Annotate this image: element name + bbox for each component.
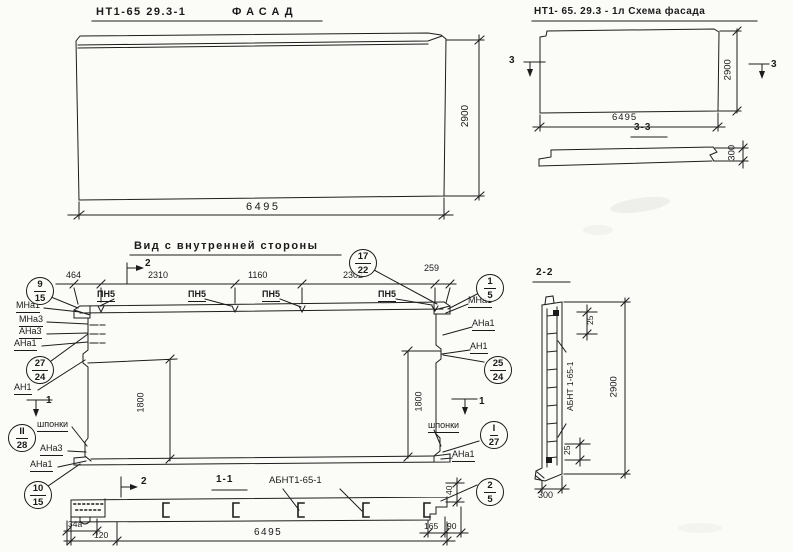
callout-bottom: 24 xyxy=(493,371,504,383)
callout-top: 27 xyxy=(32,358,49,371)
callout-top: 2 xyxy=(484,480,495,493)
dim-90: 90 xyxy=(447,522,456,531)
dim-34a: 34а xyxy=(68,520,82,529)
scheme-section-mark-left: 3 xyxy=(509,56,515,66)
callout-27-24: 27 24 xyxy=(26,356,54,384)
plate-label-pn5-2: ПН5 xyxy=(188,290,206,302)
scheme-section-mark-right: 3 xyxy=(771,60,777,70)
anchor-label-ana1-right: АНа1 xyxy=(472,319,495,331)
inner-section-mark-2: 2 xyxy=(145,259,151,269)
section-2-2-label: 2-2 xyxy=(536,268,553,278)
anchor-label-ana1-left: АНа1 xyxy=(14,339,37,351)
inner-dim-right-1800: 1800 xyxy=(415,384,424,420)
callout-bottom: 28 xyxy=(17,439,28,451)
callout-17-22: 17 22 xyxy=(349,249,377,277)
callout-9-15: 9 15 xyxy=(26,277,54,305)
callout-bottom: 22 xyxy=(358,264,369,276)
callout-bottom: 5 xyxy=(487,289,492,301)
inner-dim-1160: 1160 xyxy=(248,271,267,280)
callout-top: II xyxy=(16,426,27,439)
callout-bottom: 15 xyxy=(35,292,46,304)
section-mark-arrowheads xyxy=(33,69,765,490)
dim-25-top: 25 xyxy=(586,310,595,330)
callout-I-27: I 27 xyxy=(480,421,508,449)
callout-top: 1 xyxy=(484,276,495,289)
keys-label-right: шпонки xyxy=(428,421,459,433)
callout-1-5: 1 5 xyxy=(476,274,504,302)
section-1-1-label: 1-1 xyxy=(216,475,233,485)
scheme-title: НТ1- 65. 29.3 - 1л Схема фасада xyxy=(534,7,705,17)
anchor-ref-2-2: АБНТ 1-65-1 xyxy=(566,349,575,423)
inner-section-mark-1-right: 1 xyxy=(479,397,485,407)
anchor-label-an1-left: АН1 xyxy=(14,383,32,395)
drawing-linework xyxy=(0,0,793,552)
anchor-label-ana1-right-2: АНа1 xyxy=(452,450,475,462)
paper-smudge xyxy=(678,523,722,533)
callout-10-15: 10 15 xyxy=(24,481,52,509)
callout-top: 9 xyxy=(34,279,45,292)
callout-bottom: 27 xyxy=(489,436,500,448)
dim-2900-section: 2900 xyxy=(609,367,619,407)
plate-label-pn5-3: ПН5 xyxy=(262,290,280,302)
inner-title: Вид с внутренней стороны xyxy=(134,241,319,252)
paper-smudge xyxy=(583,225,613,235)
facade-view-linework xyxy=(68,33,484,219)
anchor-label-an1-right: АН1 xyxy=(470,342,488,354)
anchor-label-ana1-left-2: АНа1 xyxy=(30,460,53,472)
plate-label-pn5-4: ПН5 xyxy=(378,290,396,302)
callout-2-5: 2 5 xyxy=(476,478,504,506)
scheme-dim-strip: 300 xyxy=(727,138,737,168)
inner-dim-464: 464 xyxy=(66,271,81,280)
facade-dim-width: 6495 xyxy=(246,202,280,213)
callout-bottom: 24 xyxy=(35,371,46,383)
dim-40: 40 xyxy=(445,480,454,500)
facade-title-name: ФАСАД xyxy=(232,7,298,18)
anchor-ref-1-1: АБНТ1-65-1 xyxy=(269,476,322,486)
callout-top: 17 xyxy=(355,251,372,264)
inner-dim-2310: 2310 xyxy=(148,271,168,280)
callout-25-24: 25 24 xyxy=(484,356,512,384)
inner-dim-left-1800: 1800 xyxy=(137,385,146,421)
inner-section-mark-1-left: 1 xyxy=(46,396,52,406)
dim-300-section: 300 xyxy=(538,491,553,500)
dim-6495-strip: 6495 xyxy=(254,528,282,538)
callout-top: I xyxy=(490,423,499,436)
anchor-label-ana3-left-2: АНа3 xyxy=(40,444,63,456)
callout-II-28: II 28 xyxy=(8,424,36,452)
scheme-dim-height: 2900 xyxy=(723,52,733,88)
paper-smudge xyxy=(609,194,670,216)
dim-165: 165 xyxy=(424,522,438,531)
callout-top: 25 xyxy=(490,358,507,371)
dim-25-bottom: 25 xyxy=(563,440,572,460)
callout-top: 10 xyxy=(30,483,47,496)
scheme-section-label: 3-3 xyxy=(634,123,651,133)
callout-bottom: 15 xyxy=(33,496,44,508)
plate-label-pn5-1: ПН5 xyxy=(97,290,115,302)
drawing-sheet: НТ1-65 29.3-1 ФАСАД 6495 2900 НТ1- 65. 2… xyxy=(0,0,793,552)
facade-title-code: НТ1-65 29.3-1 xyxy=(96,7,186,18)
inner-dim-259: 259 xyxy=(424,264,439,273)
facade-dim-height: 2900 xyxy=(461,96,471,136)
keys-label-left: шпонки xyxy=(37,420,68,432)
dim-120: 120 xyxy=(94,531,108,540)
title-underlines xyxy=(92,21,757,255)
callout-bottom: 5 xyxy=(487,493,492,505)
strip-section-mark-2: 2 xyxy=(141,477,147,487)
